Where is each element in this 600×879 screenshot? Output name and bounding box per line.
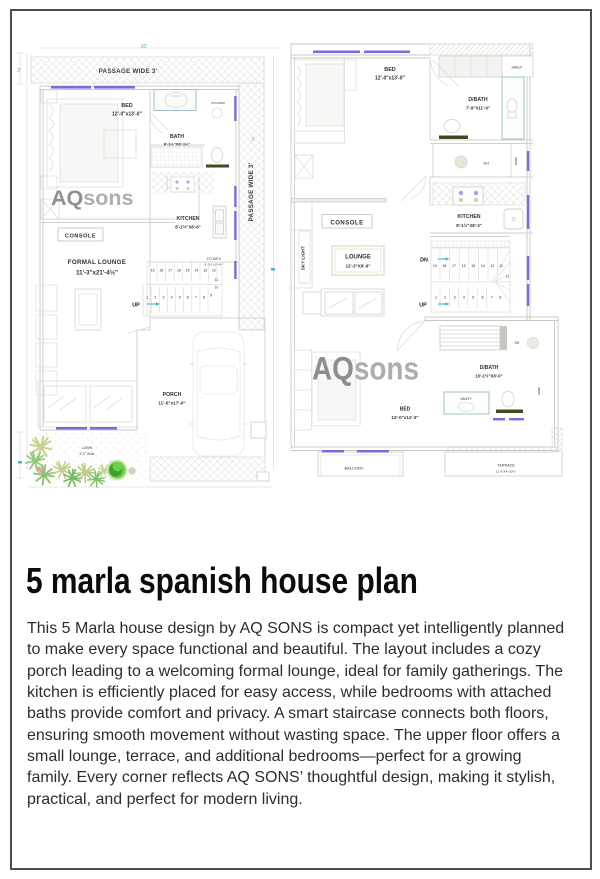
svg-text:F.D BATH: F.D BATH (207, 257, 222, 261)
svg-text:4: 4 (463, 296, 465, 300)
svg-text:BED: BED (400, 407, 411, 413)
svg-text:8'-1½"X8'-1½": 8'-1½"X8'-1½" (164, 142, 191, 147)
svg-text:15: 15 (471, 264, 475, 268)
svg-text:7'-9"X11'-0": 7'-9"X11'-0" (466, 106, 490, 111)
svg-text:6'-2½"x3'-4¾": 6'-2½"x3'-4¾" (204, 263, 223, 267)
svg-text:1: 1 (146, 296, 148, 300)
svg-text:BATH: BATH (170, 134, 184, 140)
svg-text:14: 14 (194, 269, 198, 273)
svg-text:BED: BED (384, 67, 395, 73)
svg-text:12'-0"x13'-0": 12'-0"x13'-0" (112, 112, 143, 118)
svg-text:BALCONY: BALCONY (344, 466, 363, 471)
svg-text:6: 6 (187, 296, 189, 300)
svg-text:14: 14 (481, 264, 485, 268)
svg-text:11'-3"x21'-4½": 11'-3"x21'-4½" (76, 270, 118, 277)
svg-text:12: 12 (499, 264, 503, 268)
svg-text:PASSAGE WIDE 3': PASSAGE WIDE 3' (99, 68, 158, 75)
svg-text:AQsons: AQsons (312, 351, 419, 387)
svg-text:5: 5 (179, 296, 181, 300)
svg-text:DN: DN (420, 258, 428, 264)
svg-text:LOUNGE: LOUNGE (345, 255, 371, 261)
svg-text:6: 6 (482, 296, 484, 300)
svg-text:5'-0" Wide: 5'-0" Wide (80, 452, 95, 456)
svg-text:PASSAGE WIDE 3': PASSAGE WIDE 3' (248, 162, 255, 221)
svg-text:9: 9 (210, 294, 212, 298)
svg-text:11'-6"X4'-10½": 11'-6"X4'-10½" (496, 470, 516, 474)
svg-text:UP: UP (419, 303, 427, 309)
svg-text:KITCHEN: KITCHEN (176, 216, 199, 222)
svg-text:1: 1 (435, 296, 437, 300)
svg-text:18: 18 (442, 264, 446, 268)
svg-text:ROBE: ROBE (514, 157, 518, 165)
svg-text:UP: UP (132, 303, 140, 309)
svg-text:FORMAL LOUNGE: FORMAL LOUNGE (68, 259, 126, 266)
svg-text:11'-6"x17'-0": 11'-6"x17'-0" (158, 401, 185, 406)
svg-text:3': 3' (251, 137, 255, 143)
svg-text:3': 3' (17, 68, 21, 74)
svg-text:AQsons: AQsons (51, 186, 133, 210)
svg-text:7: 7 (195, 296, 197, 300)
svg-text:D/BATH: D/BATH (480, 365, 499, 371)
svg-text:19: 19 (433, 264, 437, 268)
svg-text:8'-1½"X8'-3": 8'-1½"X8'-3" (456, 223, 482, 228)
svg-text:SHELF: SHELF (512, 66, 523, 70)
svg-text:8: 8 (499, 296, 501, 300)
svg-text:2: 2 (154, 296, 156, 300)
svg-text:18: 18 (159, 269, 163, 273)
svg-text:11: 11 (215, 278, 219, 282)
svg-text:8'-1½"X8'-6": 8'-1½"X8'-6" (175, 225, 201, 230)
svg-text:13: 13 (203, 269, 207, 273)
svg-text:7: 7 (491, 296, 493, 300)
svg-text:15: 15 (186, 269, 190, 273)
svg-text:TERRACE: TERRACE (497, 464, 515, 468)
svg-text:SH: SH (515, 341, 520, 345)
svg-text:10'-1½"X8'-0": 10'-1½"X8'-0" (475, 374, 502, 379)
svg-text:D/BATH: D/BATH (468, 97, 487, 103)
svg-text:CONSOLE: CONSOLE (330, 221, 363, 227)
svg-text:5: 5 (472, 296, 474, 300)
svg-text:KITCHEN: KITCHEN (457, 214, 480, 220)
svg-text:SHOWER: SHOWER (211, 101, 226, 105)
svg-text:19: 19 (151, 269, 155, 273)
svg-text:4: 4 (171, 296, 173, 300)
svg-text:SKY LIGHT: SKY LIGHT (301, 246, 306, 271)
svg-text:3: 3 (454, 296, 456, 300)
svg-text:17: 17 (452, 264, 456, 268)
svg-text:16: 16 (177, 269, 181, 273)
svg-text:13'-0"x11'-3": 13'-0"x11'-3" (391, 415, 418, 420)
svg-text:SH: SH (483, 161, 489, 166)
svg-text:17: 17 (168, 269, 172, 273)
svg-text:CONSOLE: CONSOLE (65, 234, 96, 240)
svg-text:11: 11 (506, 275, 510, 279)
svg-text:8: 8 (203, 296, 205, 300)
svg-text:VANITY: VANITY (460, 397, 472, 401)
svg-text:3: 3 (163, 296, 165, 300)
svg-text:16: 16 (462, 264, 466, 268)
svg-text:2: 2 (444, 296, 446, 300)
svg-text:LAWN: LAWN (82, 446, 93, 450)
svg-text:10: 10 (215, 286, 219, 290)
svg-text:13: 13 (490, 264, 494, 268)
svg-text:BED: BED (121, 103, 132, 109)
svg-text:ROBE: ROBE (537, 387, 541, 395)
svg-text:12: 12 (212, 269, 216, 273)
svg-text:20': 20' (141, 44, 148, 50)
svg-text:12'-3"X9'-9": 12'-3"X9'-9" (346, 264, 371, 269)
svg-text:PORCH: PORCH (163, 392, 182, 398)
svg-text:12'-0"x13'-0": 12'-0"x13'-0" (375, 76, 406, 82)
